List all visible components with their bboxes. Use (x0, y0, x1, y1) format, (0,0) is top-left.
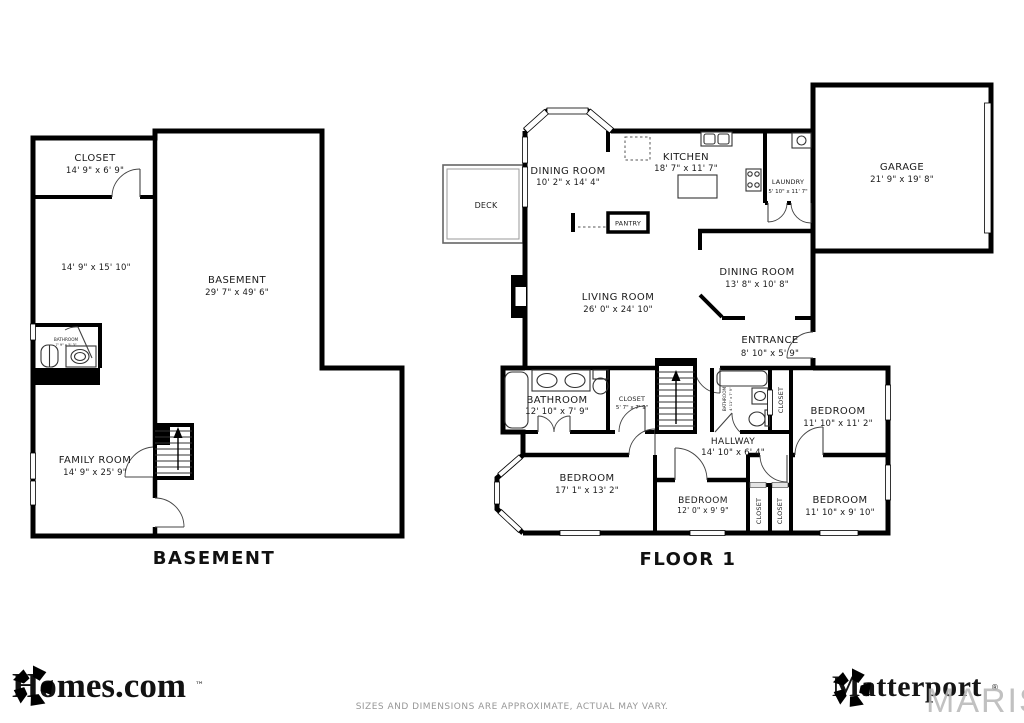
maris-watermark: MARIS (926, 682, 1024, 721)
garage-label: GARAGE (880, 162, 924, 173)
bedroom-se-label: BEDROOM (813, 495, 868, 506)
closet-hall-dims: 5' 7" x 7' 9" (616, 405, 648, 411)
bedroom-se-dims: 11' 10" x 9' 10" (805, 508, 874, 518)
dining-room-1-dims: 10' 2" x 14' 4" (536, 178, 600, 188)
basement-family-room-label: FAMILY ROOM (59, 455, 132, 466)
basement-room-dims: 14' 9" x 15' 10" (61, 263, 130, 273)
bathroom-small-dims: 4' 11" x 7' 9" (729, 387, 733, 411)
basement-title: BASEMENT (84, 548, 344, 569)
bedroom-sw-dims: 17' 1" x 13' 2" (555, 486, 619, 496)
bathroom-main-dims: 12' 10" x 7' 9" (525, 407, 589, 417)
floorplan-page: CLOSET 14' 9" x 6' 9" 14' 9" x 15' 10" B… (0, 0, 1024, 723)
closet-s2-label: CLOSET (776, 498, 784, 524)
basement-bathroom-label: BATHROOM (54, 337, 79, 342)
floor1-walls (497, 85, 991, 533)
basement-main-label: BASEMENT (208, 275, 267, 286)
closet-ne-label: CLOSET (777, 387, 785, 413)
closet-s1-label: CLOSET (755, 498, 763, 524)
basement-family-room-dims: 14' 9" x 25' 9" (63, 468, 127, 478)
homes-com-logo: Homes.com ™ (12, 668, 204, 703)
garage-dims: 21' 9" x 19' 8" (870, 175, 934, 185)
entrance-dims: 8' 10" x 5' 9" (741, 349, 799, 359)
dining-room-1-label: DINING ROOM (530, 166, 605, 177)
floor1-floor-plan: DECK DINING ROOM 10' 2" x 14' 4" KITCHEN… (435, 75, 1013, 553)
bathroom-small-label: BATHROOM (722, 386, 727, 411)
basement-main-dims: 29' 7" x 49' 6" (205, 288, 269, 298)
pantry-label: PANTRY (615, 220, 641, 228)
basement-bathroom-dims: 7' 9" x 5' 3" (55, 343, 76, 347)
hallway-dims: 14' 10" x 6' 4" (701, 448, 765, 458)
basement-stairs (155, 425, 192, 478)
dining-room-2-dims: 13' 8" x 10' 8" (725, 280, 789, 290)
basement-closet-label: CLOSET (74, 153, 116, 164)
matterport-pinwheel-icon (832, 666, 872, 709)
basement-floor-plan: CLOSET 14' 9" x 6' 9" 14' 9" x 15' 10" B… (20, 120, 420, 570)
living-room-dims: 26' 0" x 24' 10" (583, 305, 652, 315)
floor1-room-labels: DECK DINING ROOM 10' 2" x 14' 4" KITCHEN… (475, 152, 934, 524)
laundry-dims: 5' 10" x 11' 7" (768, 189, 807, 195)
floor1-title: FLOOR 1 (558, 549, 818, 570)
entrance-label: ENTRANCE (741, 335, 798, 346)
bedroom-ne-label: BEDROOM (811, 406, 866, 417)
closet-hall-label: CLOSET (619, 395, 645, 403)
living-room-label: LIVING ROOM (582, 292, 654, 303)
basement-closet-dims: 14' 9" x 6' 9" (66, 166, 124, 176)
homes-com-trademark: ™ (195, 681, 204, 691)
bedroom-sw-label: BEDROOM (560, 473, 615, 484)
deck-label: DECK (475, 201, 498, 210)
floor1-stairs (657, 358, 695, 432)
bedroom-s-label: BEDROOM (678, 496, 728, 506)
kitchen-dims: 18' 7" x 11' 7" (654, 164, 718, 174)
kitchen-label: KITCHEN (663, 152, 709, 163)
hallway-label: HALLWAY (711, 437, 755, 447)
dining-room-2-label: DINING ROOM (719, 267, 794, 278)
bedroom-s-dims: 12' 0" x 9' 9" (677, 506, 729, 515)
bedroom-ne-dims: 11' 10" x 11' 2" (803, 419, 872, 429)
laundry-label: LAUNDRY (772, 178, 804, 186)
bathroom-main-label: BATHROOM (526, 395, 587, 406)
